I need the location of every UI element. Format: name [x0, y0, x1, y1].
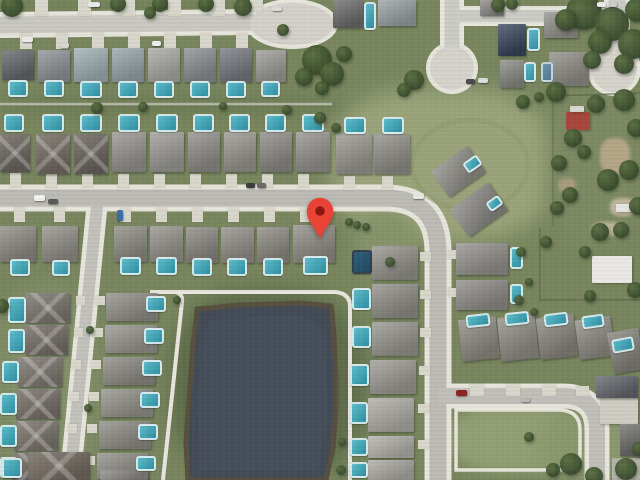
driveway [68, 424, 77, 433]
swimming-pool [263, 258, 283, 276]
house [36, 134, 70, 174]
tree [516, 247, 526, 257]
red-shed [566, 112, 590, 130]
driveway [264, 208, 275, 222]
swimming-pool [350, 462, 368, 478]
tree [336, 465, 346, 475]
house [150, 132, 184, 172]
driveway [82, 174, 93, 190]
tree [345, 218, 353, 226]
shed-annex [570, 106, 584, 112]
house [378, 0, 416, 26]
swimming-pool [350, 438, 368, 456]
tree [577, 145, 591, 159]
car [456, 390, 467, 396]
tree [277, 24, 289, 36]
house [0, 134, 30, 172]
swimming-pool [303, 256, 328, 275]
tree [550, 201, 564, 215]
house [16, 389, 60, 419]
house [26, 293, 70, 323]
swimming-pool [541, 62, 553, 82]
swimming-pool [364, 2, 376, 30]
driveway [228, 208, 239, 222]
car [88, 2, 100, 7]
swimming-pool [156, 114, 178, 132]
house [112, 48, 144, 82]
swimming-pool [4, 114, 24, 132]
driveway [168, 0, 181, 16]
driveway [95, 296, 105, 305]
swimming-pool [0, 425, 17, 447]
driveway [420, 290, 431, 299]
swimming-pool [193, 114, 214, 132]
tree [619, 160, 639, 180]
swimming-pool [350, 402, 368, 424]
tree [627, 119, 640, 137]
road-top [0, 22, 250, 25]
driveway [10, 173, 21, 190]
house [184, 48, 216, 82]
house [372, 246, 418, 280]
tree [615, 458, 637, 480]
swimming-pool [226, 81, 246, 98]
swimming-pool [2, 458, 22, 478]
swimming-pool [227, 258, 247, 276]
driveway [576, 386, 589, 396]
swimming-pool [190, 81, 210, 98]
swimming-pool [8, 329, 25, 353]
house [14, 421, 58, 451]
driveway [156, 208, 167, 222]
driveway [419, 366, 430, 375]
tree [632, 442, 640, 456]
driveway [382, 176, 393, 190]
driveway [35, 0, 48, 16]
swimming-pool [118, 114, 140, 132]
swimming-pool [10, 259, 30, 276]
house [18, 357, 62, 387]
swimming-pool [156, 257, 177, 275]
driveway [76, 296, 85, 305]
house [0, 226, 36, 262]
driveway [418, 440, 429, 449]
tree [315, 81, 329, 95]
tree [546, 82, 566, 102]
swimming-pool [154, 81, 174, 98]
house [336, 134, 372, 174]
car [152, 41, 161, 46]
swimming-pool [142, 360, 162, 376]
tree [546, 463, 560, 477]
house [74, 48, 108, 82]
driveway [92, 33, 104, 49]
house [25, 325, 68, 355]
swimming-pool [352, 326, 371, 348]
swimming-pool [344, 117, 366, 134]
swimming-pool [8, 80, 28, 97]
driveway [74, 328, 83, 337]
house [456, 243, 508, 275]
house [368, 436, 414, 458]
house [220, 48, 252, 82]
tree [282, 105, 292, 115]
tree [613, 222, 629, 238]
tree [86, 326, 94, 334]
tree [397, 83, 411, 97]
driveway [118, 174, 129, 190]
swimming-pool [352, 288, 371, 310]
car [413, 193, 424, 199]
house [28, 452, 90, 480]
tree [587, 95, 605, 113]
tree [362, 223, 370, 231]
driveway [418, 404, 429, 413]
swimming-pool [146, 296, 166, 312]
swimming-pool [8, 297, 26, 323]
pond-sheen [198, 315, 327, 470]
car [246, 183, 255, 188]
driveway [46, 174, 57, 190]
tree [336, 46, 352, 62]
satellite-map[interactable] [0, 0, 640, 480]
house [374, 134, 410, 174]
tree [629, 197, 640, 215]
tree [331, 123, 341, 133]
tree [613, 89, 635, 111]
car [60, 43, 69, 48]
tree [560, 453, 582, 475]
tree [555, 9, 577, 31]
tree [219, 102, 227, 110]
driveway [470, 384, 484, 396]
house [333, 0, 363, 28]
swimming-pool [52, 260, 70, 276]
swimming-pool [229, 114, 250, 132]
driveway [54, 207, 65, 222]
house [256, 50, 286, 82]
tree [564, 129, 582, 147]
swimming-pool [140, 392, 160, 408]
swimming-pool [144, 328, 164, 344]
swimming-pool [2, 361, 19, 383]
driveway [236, 33, 248, 49]
tree [585, 467, 603, 480]
swimming-pool [265, 114, 286, 132]
house [370, 360, 416, 394]
house [148, 48, 180, 82]
driveway [192, 208, 203, 222]
driveway [72, 360, 81, 369]
house [74, 134, 108, 174]
driveway [190, 174, 201, 190]
house [224, 132, 256, 172]
swimming-pool [42, 114, 64, 132]
swimming-pool [44, 80, 64, 97]
tree [525, 278, 533, 286]
driveway [420, 252, 431, 261]
tree [524, 432, 534, 442]
swimming-pool [527, 28, 540, 51]
tree [353, 221, 361, 229]
house [368, 460, 414, 480]
house [2, 50, 34, 80]
swimming-pool [80, 114, 102, 132]
tree [84, 404, 92, 412]
tree [314, 112, 326, 124]
house [188, 132, 220, 172]
swimming-pool [350, 364, 369, 386]
car [48, 199, 58, 204]
tree [591, 223, 609, 241]
car [272, 6, 282, 11]
swimming-pool [120, 257, 141, 275]
tree [138, 102, 148, 112]
tree [584, 290, 596, 302]
car [478, 78, 488, 83]
swimming-pool [138, 424, 158, 440]
house [372, 284, 418, 318]
white-barn [592, 256, 632, 283]
tree [385, 257, 395, 267]
driveway [200, 33, 212, 49]
house [112, 132, 146, 172]
tree [295, 68, 313, 86]
driveway [506, 384, 520, 396]
driveway [542, 385, 556, 396]
car [609, 2, 617, 7]
driveway [344, 176, 355, 190]
car [466, 79, 475, 84]
tree [597, 169, 619, 191]
tree [534, 92, 544, 102]
tree [530, 308, 538, 316]
tree [579, 246, 591, 258]
swimming-pool [261, 81, 280, 97]
driveway [14, 207, 25, 222]
swimming-pool [524, 62, 536, 82]
tree [338, 438, 346, 446]
driveway [128, 33, 140, 49]
tree [583, 51, 601, 69]
driveway [420, 328, 431, 337]
house [456, 280, 508, 310]
swimming-pool [382, 117, 404, 134]
tree [144, 7, 156, 19]
house [42, 226, 78, 262]
swimming-pool [80, 81, 102, 98]
driveway [91, 360, 101, 369]
driveway [298, 174, 309, 190]
driveway [154, 174, 165, 190]
house [372, 322, 418, 356]
swimming-pool [465, 313, 490, 328]
car [521, 397, 530, 402]
driveway [226, 174, 237, 190]
house [498, 24, 526, 56]
tree [516, 95, 530, 109]
location-marker-pin[interactable] [294, 194, 346, 242]
swimming-pool [136, 456, 156, 471]
house [596, 376, 638, 398]
car [22, 37, 33, 42]
driveway [89, 392, 99, 401]
house [296, 132, 330, 172]
car [34, 195, 45, 201]
driveway [164, 33, 176, 49]
house [38, 50, 70, 82]
house [368, 398, 414, 432]
swimming-pool [504, 311, 529, 326]
driveway [93, 328, 103, 337]
car [117, 210, 123, 221]
house [100, 470, 148, 480]
tree [514, 295, 524, 305]
tree [627, 282, 640, 298]
tree [551, 155, 567, 171]
car [597, 2, 606, 7]
tree [540, 236, 552, 248]
swimming-pool [0, 393, 17, 415]
house [260, 132, 292, 172]
swimming-pool [118, 81, 138, 98]
swimming-pool [352, 250, 372, 274]
house [500, 60, 524, 88]
car [257, 183, 266, 188]
driveway [70, 392, 79, 401]
concrete-pad [600, 398, 638, 424]
swimming-pool [192, 258, 212, 276]
tree [91, 102, 103, 114]
tree [173, 296, 181, 304]
tree [614, 54, 634, 74]
driveway [87, 424, 97, 433]
tree [562, 187, 578, 203]
